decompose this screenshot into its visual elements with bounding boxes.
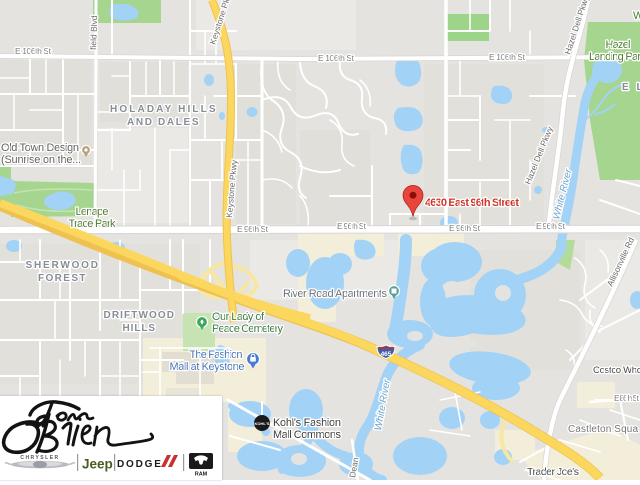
- svg-text:E 96th St: E 96th St: [337, 221, 367, 231]
- svg-text:HILLS: HILLS: [123, 323, 158, 334]
- svg-text:Costco Who: Costco Who: [593, 365, 640, 376]
- svg-text:Mall at Keystone: Mall at Keystone: [170, 361, 245, 373]
- svg-text:Jeep: Jeep: [82, 457, 113, 472]
- svg-text:CHRYSLER: CHRYSLER: [20, 455, 59, 461]
- svg-text:The Fashion: The Fashion: [190, 349, 243, 361]
- svg-text:River Road Apartments: River Road Apartments: [283, 288, 388, 300]
- svg-text:RAM: RAM: [195, 472, 208, 478]
- svg-text:KOHL'S: KOHL'S: [255, 421, 270, 426]
- svg-text:E 96th St: E 96th St: [449, 223, 481, 233]
- svg-text:DRIFTWOOD: DRIFTWOOD: [104, 310, 177, 321]
- svg-text:HOLADAY HILLS: HOLADAY HILLS: [110, 104, 218, 115]
- svg-text:Landing Par: Landing Par: [589, 51, 640, 63]
- svg-text:SHERWOOD: SHERWOOD: [26, 260, 101, 271]
- svg-text:4630 East 96th Street: 4630 East 96th Street: [425, 197, 519, 209]
- svg-text:E 96th St: E 96th St: [536, 221, 566, 231]
- svg-text:E 106th St: E 106th St: [318, 53, 355, 63]
- svg-text:E 106th St: E 106th St: [15, 46, 52, 56]
- svg-text:AND DALES: AND DALES: [127, 117, 201, 128]
- svg-text:Lenape: Lenape: [76, 206, 109, 218]
- svg-text:Peace Cemetery: Peace Cemetery: [212, 323, 284, 335]
- svg-text:E 96th St: E 96th St: [237, 224, 269, 234]
- svg-text:E 106th St: E 106th St: [489, 52, 526, 62]
- svg-text:(Sunrise on the...: (Sunrise on the...: [1, 154, 81, 166]
- svg-text:Our Lady of: Our Lady of: [212, 311, 265, 323]
- svg-text:field Blvd: field Blvd: [88, 15, 99, 50]
- svg-text:Mall Commons: Mall Commons: [273, 429, 342, 441]
- svg-text:W: W: [633, 10, 640, 22]
- svg-text:Hazel: Hazel: [606, 39, 631, 51]
- svg-text:Trace Park: Trace Park: [69, 218, 117, 230]
- svg-text:DODGE: DODGE: [117, 459, 163, 470]
- svg-text:Trader Joe's: Trader Joe's: [527, 466, 579, 478]
- svg-text:Old Town Design: Old Town Design: [1, 142, 79, 154]
- svg-text:E L: E L: [622, 82, 640, 93]
- svg-text:E 86th St: E 86th St: [614, 393, 640, 403]
- svg-text:465: 465: [381, 351, 392, 358]
- svg-text:Castleton Squa: Castleton Squa: [568, 424, 638, 435]
- svg-text:FOREST: FOREST: [38, 273, 88, 284]
- svg-text:Kohl's Fashion: Kohl's Fashion: [273, 417, 341, 429]
